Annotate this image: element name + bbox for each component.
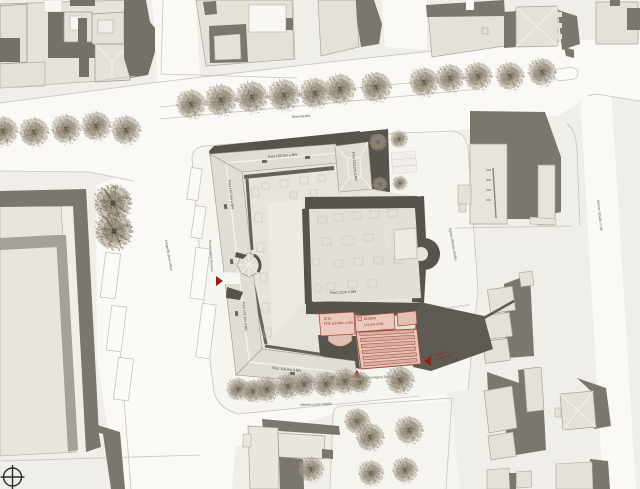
svg-text:KITA: KITA <box>324 317 332 321</box>
